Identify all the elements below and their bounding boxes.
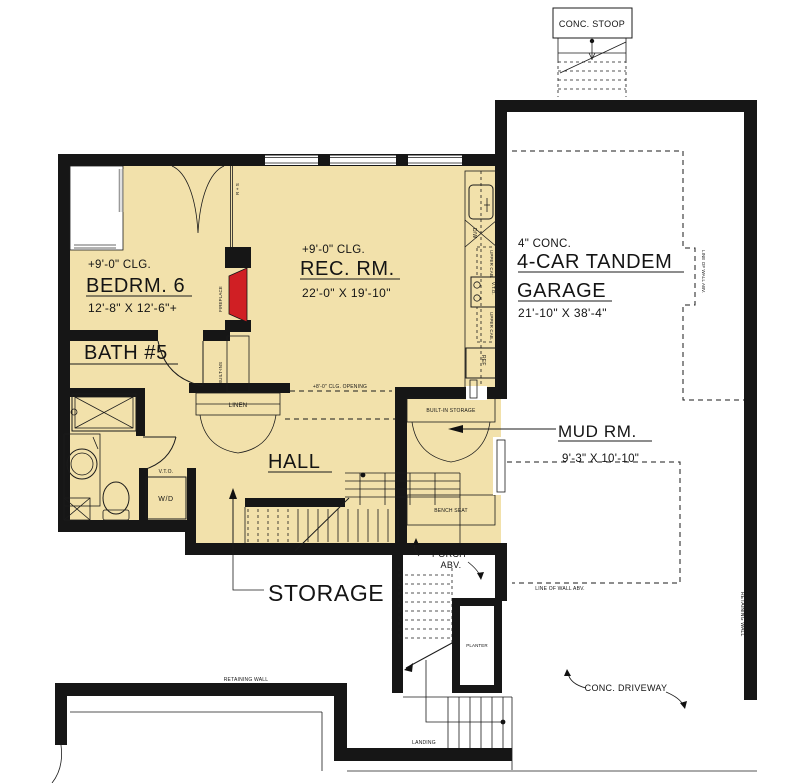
mud-name: MUD RM. (558, 422, 637, 441)
bedroom-name: BEDRM. 6 (86, 275, 185, 297)
line-of-wall-abv-garage: LINE OF WALL ABV. (701, 250, 706, 293)
dw-label: D/W (471, 228, 477, 238)
driveway-label: CONC. DRIVEWAY (585, 683, 668, 693)
floor-plan-drawing: +9'-0" CLG. BEDRM. 6 12'-8" X 12'-6"+ +9… (0, 0, 800, 783)
rec-rm-windows (265, 156, 462, 166)
line-of-wall-abv-drive: LINE OF WALL ABV. (535, 586, 585, 592)
upper-cab-label-2: UPPER CAB. (489, 312, 494, 340)
handrail-post (361, 473, 366, 478)
retaining-wall-right-label: RETAINING WALL (739, 592, 745, 636)
floor-plan-page: +9'-0" CLG. BEDRM. 6 12'-8" X 12'-6"+ +9… (0, 0, 800, 783)
retaining-wall-label: RETAINING WALL (224, 677, 268, 683)
linen-label: LINEN (229, 403, 248, 409)
bedroom-ceiling-note: +9'-0" CLG. (88, 259, 151, 271)
rec-dims: 22'-0" X 19'-10" (302, 286, 391, 300)
rec-ceiling-note: +9'-0" CLG. (302, 244, 365, 256)
window-well (70, 166, 123, 250)
garage-name-2: GARAGE (517, 280, 606, 302)
bedroom-dims: 12'-8" X 12'-6"+ (88, 301, 177, 315)
landing-label: LANDING (412, 740, 436, 746)
built-in-storage-label: BUILT-IN STORAGE (426, 408, 476, 414)
hall-name: HALL (268, 451, 320, 473)
upper-cab-label-1: UPPER CAB. (489, 250, 494, 278)
clg-opening-label: +8'-0" CLG. OPENING (313, 384, 367, 390)
vto-range-label: V.T.O. (491, 282, 496, 295)
planter-label: PLANTER (466, 643, 488, 648)
bath-name: BATH #5 (84, 342, 168, 364)
stoop-label: CONC. STOOP (559, 19, 625, 29)
fireplace-label: FIREPLACE (218, 286, 223, 312)
garage-name-1: 4-CAR TANDEM (517, 251, 672, 273)
garage-dims: 21'-10" X 38'-4" (518, 306, 607, 320)
mud-dims: 9'-3" X 10'-10" (562, 453, 639, 465)
storage-name: STORAGE (268, 580, 384, 606)
porch-abv-label-2: ABV. (441, 560, 462, 570)
fireplace (229, 268, 247, 322)
garage-slab-note: 4" CONC. (518, 238, 571, 250)
rod-shelf-label: R + S (235, 183, 240, 195)
wd-label: W/D (158, 496, 173, 503)
built-ins-label: BUILT-INS (218, 362, 223, 384)
vto-wd-label: V.T.O. (159, 469, 174, 475)
ref-label: REF (480, 355, 486, 366)
bench-seat-label: BENCH SEAT (434, 508, 468, 514)
rec-name: REC. RM. (300, 258, 395, 280)
porch-abv-label-1: PORCH (432, 549, 466, 559)
